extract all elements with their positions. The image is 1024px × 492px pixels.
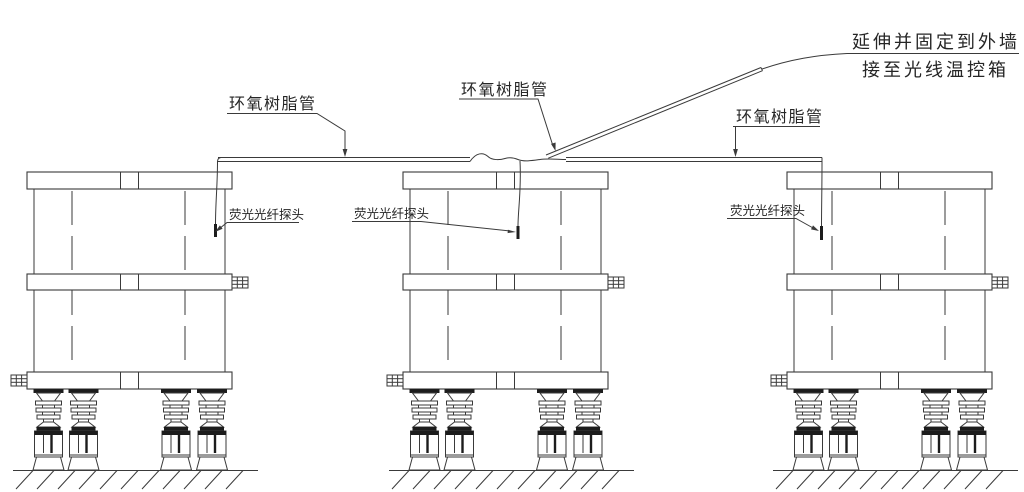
- ground-right: [773, 471, 1018, 490]
- note-line-2: 接至光线温控箱: [862, 60, 1009, 81]
- epoxy-label-leader-right: [733, 127, 820, 158]
- epoxy-label-leader-left: [227, 114, 347, 158]
- insulator-leg: [197, 389, 228, 470]
- insulator-leg: [957, 389, 988, 470]
- insulator-leg: [68, 389, 99, 470]
- epoxy-pipe-diagonal: [546, 68, 763, 159]
- fiber-probe-label-right: 荧光光纤探头: [730, 203, 805, 218]
- probe-cable-middle: [518, 161, 520, 226]
- epoxy-pipe-horizontal-right: [566, 158, 822, 163]
- ground-left: [13, 471, 258, 490]
- fiber-probe-label-left: 荧光光纤探头: [229, 207, 304, 222]
- probe-label-leader-middle: [352, 222, 516, 234]
- insulator-leg: [537, 389, 568, 470]
- insulator-leg: [921, 389, 952, 470]
- drawing-svg: 环氧树脂管 环氧树脂管 环氧树脂管 荧光光纤探头 荧光光纤探头 荧光光纤探头 延…: [0, 0, 1024, 492]
- transformer-group: [11, 172, 1018, 489]
- epoxy-tube-label-right: 环氧树脂管: [736, 107, 824, 126]
- insulator-leg: [828, 389, 859, 470]
- note-line-1: 延伸并固定到外墙: [852, 32, 1020, 53]
- epoxy-tube-label-left: 环氧树脂管: [229, 94, 317, 113]
- probe-cable-left: [216, 161, 218, 224]
- epoxy-pipe-horizontal-left: [218, 158, 471, 162]
- insulator-leg: [409, 389, 440, 470]
- transformer-left: [11, 172, 258, 489]
- insulator-leg: [573, 389, 604, 470]
- epoxy-pipe-flex-section: [470, 154, 566, 162]
- transformer-right: [771, 172, 1018, 489]
- probe-label-leader-left: [215, 223, 299, 233]
- probe-cable-right: [822, 162, 823, 226]
- insulator-leg: [444, 389, 475, 470]
- insulator-leg: [33, 389, 64, 470]
- probe-label-leader-right: [727, 219, 819, 232]
- fiber-probe-label-middle: 荧光光纤探头: [354, 206, 429, 221]
- ground-middle: [389, 471, 634, 490]
- diagram-canvas: 环氧树脂管 环氧树脂管 环氧树脂管 荧光光纤探头 荧光光纤探头 荧光光纤探头 延…: [0, 0, 1024, 492]
- epoxy-tube-label-middle: 环氧树脂管: [461, 80, 549, 99]
- insulator-leg: [161, 389, 192, 470]
- epoxy-label-leader-middle: [459, 99, 556, 151]
- note-leader-curve: [762, 54, 847, 70]
- insulator-leg: [793, 389, 824, 470]
